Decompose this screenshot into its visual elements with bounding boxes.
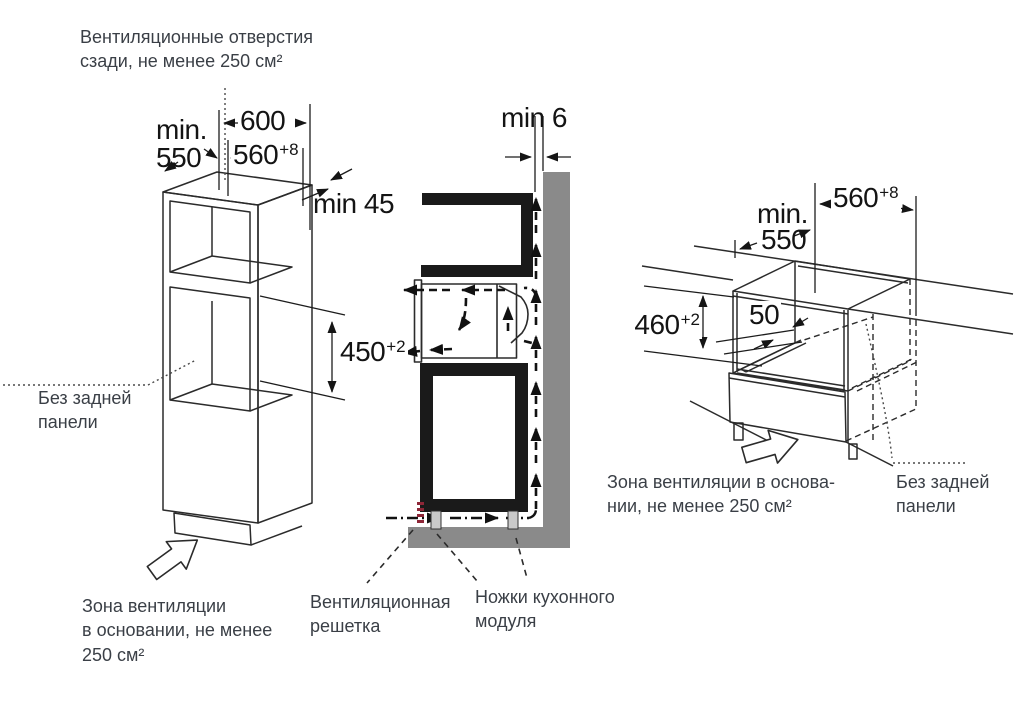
dim-width-560-right: 560+8: [831, 184, 901, 212]
note-line: 250 см²: [82, 643, 272, 667]
note-line: Вентиляционная: [310, 590, 451, 614]
cabinet-side-face: [258, 185, 312, 523]
note-line: Зона вентиляции: [82, 594, 272, 618]
note-vent-holes-rear: Вентиляционные отверстия сзади, не менее…: [80, 25, 313, 74]
dim-depth-min-label-left: min.: [156, 116, 207, 144]
upper-compartment-opening: [170, 201, 250, 283]
note-line: Без задней: [38, 386, 131, 410]
note-line: Ножки кухонного: [475, 585, 615, 609]
dim-niche-height-450: 450+2: [338, 338, 408, 366]
note-line: Вентиляционные отверстия: [80, 25, 313, 49]
appliance-body: [422, 284, 517, 358]
note-line: сзади, не менее 250 см²: [80, 49, 313, 73]
upper-compartment-shelf: [170, 256, 292, 283]
dim-top-gap-min45: min 45: [313, 190, 394, 218]
oven-niche-opening: [170, 287, 250, 411]
module-foot: [431, 511, 441, 529]
note-line: Без задней: [896, 470, 989, 494]
note-line: в основании, не менее: [82, 618, 272, 642]
installation-diagram-page: Вентиляционные отверстия сзади, не менее…: [0, 0, 1023, 717]
note-line: панели: [38, 410, 131, 434]
dim-width-560-left: 560+8: [231, 141, 301, 169]
dim-wall-gap-min6: min 6: [501, 104, 567, 132]
note-line: нии, не менее 250 см²: [607, 494, 835, 518]
note-vent-zone-right: Зона вентиляции в основа- нии, не менее …: [607, 470, 835, 519]
module-foot: [508, 511, 518, 529]
cabinet-top-face: [163, 172, 312, 205]
fan-housing: [499, 286, 528, 343]
oven-niche-floor: [170, 384, 292, 411]
note-line: панели: [896, 494, 989, 518]
dim-depth-min-value-right: 550: [761, 226, 806, 254]
no-back-panel-leader: [3, 360, 196, 385]
appliance-door: [415, 280, 422, 362]
dim-depth-min-value-left: 550: [156, 144, 201, 172]
upper-cabinet-section: [421, 193, 533, 277]
note-line: решетка: [310, 614, 451, 638]
note-no-back-panel-right: Без задней панели: [896, 470, 989, 519]
dim-rail-offset-50: 50: [747, 301, 781, 329]
note-line: модуля: [475, 609, 615, 633]
note-line: Зона вентиляции в основа-: [607, 470, 835, 494]
cabinet-front-face: [163, 192, 258, 523]
note-vent-zone-left: Зона вентиляции в основании, не менее 25…: [82, 594, 272, 667]
dim-niche-height-460: 460+2: [622, 311, 702, 339]
dim-width-600: 600: [238, 107, 287, 135]
base-airflow-arrow: [142, 526, 207, 586]
lower-cabinet-section: [420, 363, 528, 512]
note-ventilation-grille: Вентиляционная решетка: [310, 590, 451, 639]
note-module-feet: Ножки кухонного модуля: [475, 585, 615, 634]
note-no-back-panel-left: Без задней панели: [38, 386, 131, 435]
